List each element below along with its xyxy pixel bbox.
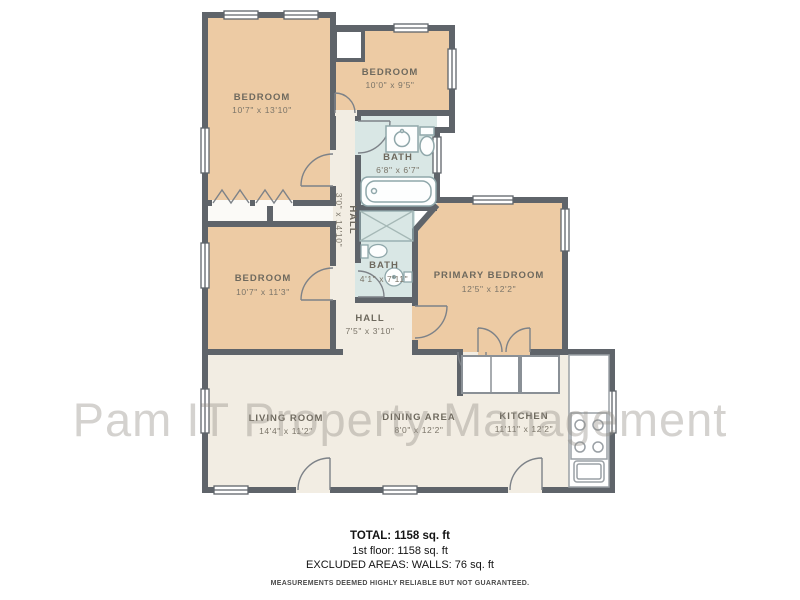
floor-plan-drawing: BEDROOM 10'7" x 13'10" BEDROOM 10'0" x 9… [0, 0, 800, 600]
window [224, 11, 258, 19]
dims-bedroom-2: 10'0" x 9'5" [365, 80, 414, 90]
dims-bath-2: 4'1" x 7'11" [360, 274, 408, 284]
window [383, 486, 417, 494]
window [201, 243, 209, 288]
toilet-icon [369, 245, 387, 258]
excluded-areas-text: EXCLUDED AREAS: WALLS: 76 sq. ft [0, 559, 800, 571]
window [201, 128, 209, 173]
label-kitchen: KITCHEN [499, 411, 548, 422]
label-hall-1: HALL [347, 205, 358, 234]
window [473, 196, 513, 204]
area-summary: TOTAL: 1158 sq. ft 1st floor: 1158 sq. f… [0, 530, 800, 587]
dims-bedroom-1: 10'7" x 13'10" [232, 105, 292, 115]
label-bedroom-3: BEDROOM [235, 273, 292, 284]
toilet-tank-icon [361, 245, 368, 258]
dims-kitchen: 11'11" x 12'2" [495, 424, 553, 434]
dims-hall-1: 3'0" x 14'10" [334, 193, 344, 247]
toilet-icon [420, 137, 434, 156]
window [214, 486, 248, 494]
window [394, 24, 428, 32]
faucet-icon [401, 130, 404, 133]
dims-living-room: 14'4" x 11'2" [259, 426, 313, 436]
floor-plan-page: BEDROOM 10'7" x 13'10" BEDROOM 10'0" x 9… [0, 0, 800, 600]
dims-bedroom-3: 10'7" x 11'3" [236, 287, 290, 297]
label-primary-bedroom: PRIMARY BEDROOM [434, 270, 545, 281]
window [284, 11, 318, 19]
first-floor-area-text: 1st floor: 1158 sq. ft [0, 545, 800, 557]
sink-icon [395, 132, 410, 147]
closet-nook [335, 30, 363, 60]
label-bath-2: BATH [369, 260, 399, 271]
dims-dining-area: 8'0" x 12'2" [394, 425, 443, 435]
label-bath-1: BATH [383, 152, 413, 163]
label-dining-area: DINING AREA [382, 412, 455, 423]
label-bedroom-1: BEDROOM [234, 92, 291, 103]
window [201, 389, 209, 433]
drain-icon [372, 189, 377, 194]
dims-hall-2: 7'5" x 3'10" [345, 326, 394, 336]
window [448, 49, 456, 89]
label-hall-2: HALL [355, 313, 384, 324]
total-area-text: TOTAL: 1158 sq. ft [0, 530, 800, 542]
stove-icon [571, 413, 607, 459]
window [561, 209, 569, 251]
label-bedroom-2: BEDROOM [362, 67, 419, 78]
dims-bath-1: 6'8" x 6'7" [376, 165, 420, 175]
dims-primary-bedroom: 12'5" x 12'2" [462, 284, 516, 294]
closet-cabinet [521, 356, 559, 393]
toilet-tank-icon [420, 127, 434, 135]
disclaimer-text: MEASUREMENTS DEEMED HIGHLY RELIABLE BUT … [0, 580, 800, 587]
label-living-room: LIVING ROOM [249, 413, 324, 424]
